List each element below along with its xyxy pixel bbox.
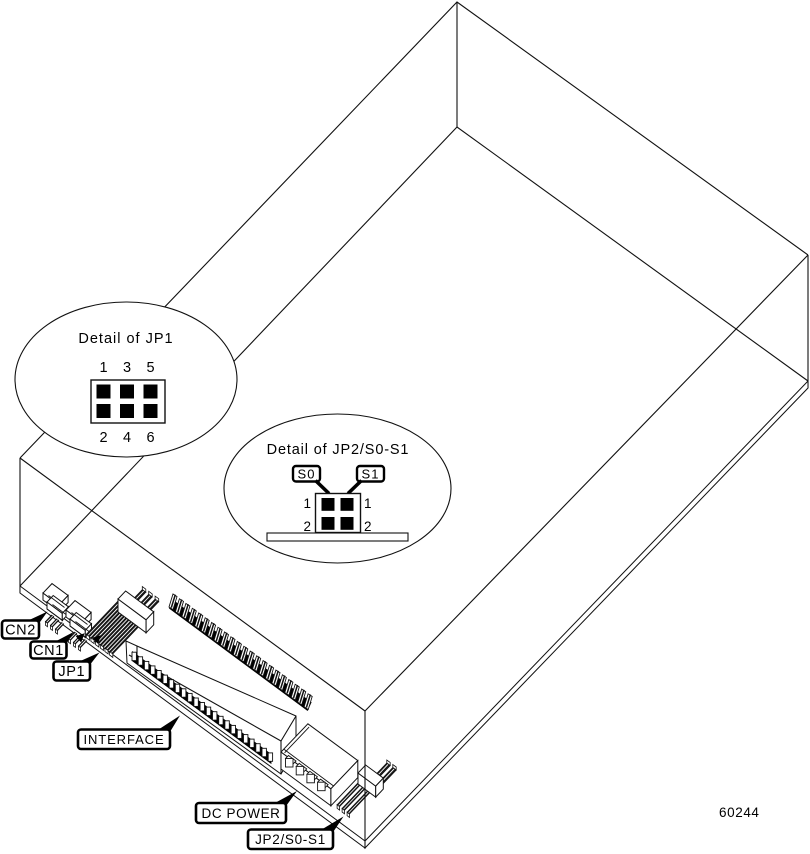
svg-text:JP2/S0-S1: JP2/S0-S1 — [255, 832, 326, 847]
svg-text:2: 2 — [303, 519, 311, 534]
svg-text:JP1: JP1 — [58, 664, 85, 680]
svg-text:CN2: CN2 — [5, 623, 36, 639]
svg-text:1: 1 — [364, 496, 372, 511]
svg-text:2: 2 — [99, 430, 107, 446]
svg-text:DC POWER: DC POWER — [201, 806, 280, 821]
svg-text:1: 1 — [303, 496, 311, 511]
svg-text:S0: S0 — [298, 467, 316, 482]
svg-text:Detail of JP1: Detail of JP1 — [78, 331, 173, 347]
svg-text:S1: S1 — [362, 467, 380, 482]
svg-text:4: 4 — [123, 430, 131, 446]
svg-text:2: 2 — [364, 519, 372, 534]
svg-text:CN1: CN1 — [33, 643, 64, 659]
svg-text:3: 3 — [123, 360, 131, 376]
svg-text:Detail of JP2/S0-S1: Detail of JP2/S0-S1 — [267, 442, 410, 458]
svg-text:INTERFACE: INTERFACE — [83, 732, 164, 747]
svg-text:60244: 60244 — [719, 805, 760, 820]
svg-text:1: 1 — [99, 360, 107, 376]
svg-text:6: 6 — [146, 430, 154, 446]
svg-text:5: 5 — [146, 360, 154, 376]
